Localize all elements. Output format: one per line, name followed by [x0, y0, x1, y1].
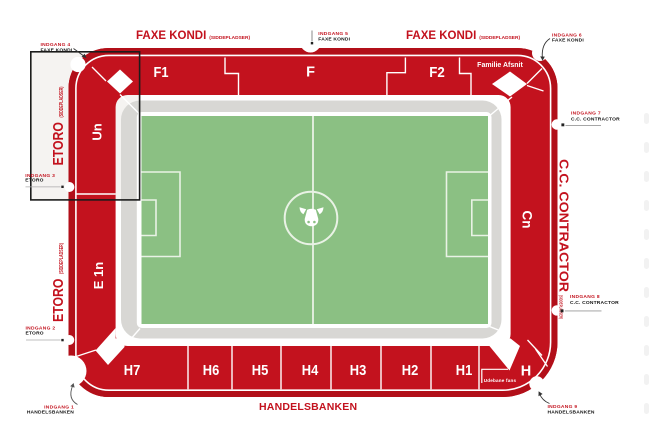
svg-text:INDGANG 4: INDGANG 4 [41, 42, 71, 48]
svg-text:F: F [306, 65, 315, 81]
svg-text:H5: H5 [252, 363, 269, 379]
svg-text:ETORO: ETORO [25, 178, 43, 184]
svg-text:Cn: Cn [520, 211, 535, 229]
svg-text:H: H [521, 364, 531, 380]
svg-text:FAXE KONDI: FAXE KONDI [552, 38, 584, 44]
svg-text:Udebane fans: Udebane fans [484, 378, 517, 383]
svg-text:H1: H1 [456, 363, 473, 379]
svg-text:H4: H4 [302, 363, 319, 379]
svg-text:F1: F1 [154, 65, 169, 81]
svg-text:Familie Afsnit: Familie Afsnit [477, 62, 523, 69]
svg-text:INDGANG 5: INDGANG 5 [318, 31, 348, 37]
svg-text:H3: H3 [350, 363, 367, 379]
svg-text:HANDELSBANKEN: HANDELSBANKEN [259, 401, 357, 413]
svg-text:FAXE KONDI(SIDDEPLADSER): FAXE KONDI(SIDDEPLADSER) [136, 30, 250, 42]
svg-text:ETORO(SIDDEPLADSER): ETORO(SIDDEPLADSER) [50, 243, 67, 322]
svg-text:INDGANG 7: INDGANG 7 [571, 111, 601, 117]
svg-text:C.C. CONTRACTOR: C.C. CONTRACTOR [570, 300, 619, 306]
svg-text:HANDELSBANKEN: HANDELSBANKEN [548, 410, 595, 416]
svg-text:HANDELSBANKEN: HANDELSBANKEN [27, 410, 74, 416]
svg-text:INDGANG 9: INDGANG 9 [548, 404, 578, 410]
svg-text:FAXE KONDI: FAXE KONDI [318, 37, 350, 43]
svg-text:ETORO: ETORO [26, 331, 44, 337]
svg-text:H6: H6 [203, 363, 220, 379]
svg-text:Un: Un [90, 123, 105, 140]
svg-text:FAXE KONDI: FAXE KONDI [41, 48, 73, 54]
svg-text:H7: H7 [124, 363, 141, 379]
svg-text:H2: H2 [402, 363, 419, 379]
svg-text:FAXE KONDI(SIDDEPLADSER): FAXE KONDI(SIDDEPLADSER) [406, 30, 520, 42]
svg-text:INDGANG 8: INDGANG 8 [570, 294, 600, 300]
svg-text:F2: F2 [429, 65, 445, 81]
svg-text:E 1n: E 1n [91, 262, 106, 290]
svg-text:C.C. CONTRACTOR: C.C. CONTRACTOR [571, 117, 620, 123]
